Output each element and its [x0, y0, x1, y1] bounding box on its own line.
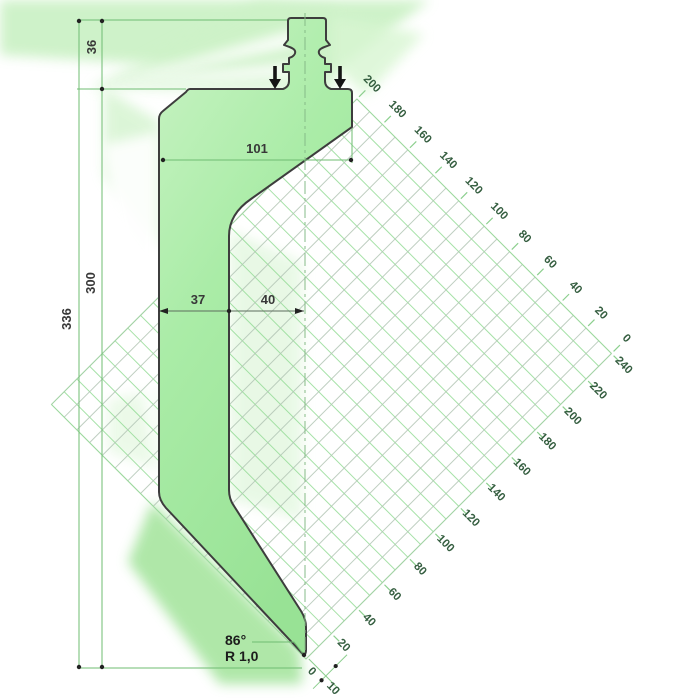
label-tip-radius: R 1,0 — [225, 648, 259, 664]
label-36: 36 — [84, 40, 99, 54]
scale-tick-label: 80 — [516, 228, 534, 246]
scale-tick-label: 20 — [592, 304, 610, 322]
scale-tick — [512, 243, 518, 249]
scale-tick — [537, 269, 543, 275]
label-336: 336 — [59, 308, 74, 330]
label-300: 300 — [83, 272, 98, 294]
tip-ruler-label: 10 — [324, 680, 342, 698]
scale-tick — [486, 218, 492, 224]
tip-ruler-label: 0 — [305, 665, 318, 678]
label-101: 101 — [246, 141, 268, 156]
scale-tick — [410, 141, 416, 147]
scale-tick — [563, 294, 569, 300]
scale-tick-label: 40 — [567, 279, 585, 297]
scale-tick — [435, 167, 441, 173]
scale-tick-label: 0 — [620, 332, 633, 345]
label-40: 40 — [261, 292, 275, 307]
dim-dot — [161, 158, 165, 162]
scale-tick-label: 60 — [541, 254, 559, 272]
dim-dot — [77, 19, 81, 23]
label-tip-angle: 86° — [225, 632, 246, 648]
dim-dot — [100, 87, 104, 91]
dim-dot — [77, 665, 81, 669]
label-37: 37 — [191, 292, 205, 307]
scale-tick — [384, 116, 390, 122]
scale-tick — [461, 192, 467, 198]
dim-dot — [100, 19, 104, 23]
tip-dot — [302, 653, 306, 657]
scale-tick — [614, 345, 620, 351]
dim-dot — [100, 665, 104, 669]
technical-drawing: 2001801601401201008060402002402202001801… — [0, 0, 700, 700]
scale-tick — [588, 320, 594, 326]
dim-dot — [227, 309, 231, 313]
glow-grid-left — [230, 230, 302, 520]
dim-dot — [349, 158, 353, 162]
